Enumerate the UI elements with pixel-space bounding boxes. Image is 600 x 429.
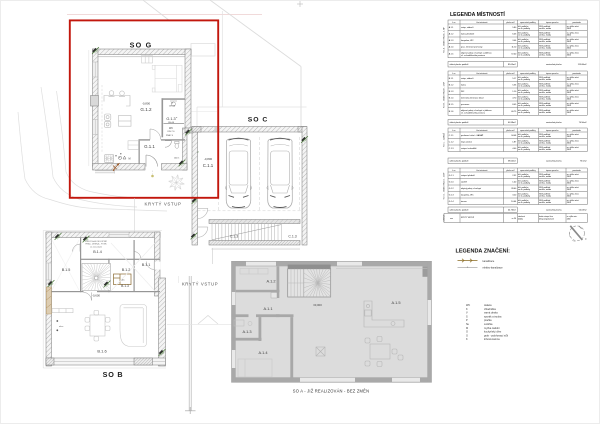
- svg-text:WC: WC: [169, 127, 173, 130]
- svg-text:omítka, malba: omítka, malba: [539, 84, 552, 87]
- svg-text:2600: 2600: [567, 34, 571, 36]
- svg-text:ve sk. podlahy: ve sk. podlahy: [518, 105, 530, 107]
- svg-text:B.1.3: B.1.3: [121, 284, 129, 288]
- svg-text:kuchyňský dřez: kuchyňský dřez: [484, 331, 502, 334]
- svg-text:omítka, malba: omítka, malba: [539, 33, 552, 36]
- svg-text:část místnosti: část místnosti: [476, 21, 488, 24]
- svg-text:74.56m2: 74.56m2: [579, 122, 588, 124]
- svg-text:plocha m2: plocha m2: [506, 170, 514, 172]
- svg-text:SO A - JIŽ REALIZOVÁN - BEZ ZM: SO A - JIŽ REALIZOVÁN - BEZ ZMĚN: [293, 388, 369, 393]
- svg-text:B.1.1: B.1.1: [142, 263, 151, 267]
- svg-text:zpracování podlahy: zpracování podlahy: [520, 130, 536, 132]
- svg-text:DN 7.0: DN 7.0: [168, 131, 176, 133]
- svg-text:CH-00: CH-00: [168, 122, 175, 124]
- svg-text:A.1.4: A.1.4: [258, 350, 268, 355]
- svg-text:72.40: 72.40: [511, 54, 517, 56]
- svg-text:2600: 2600: [567, 41, 571, 43]
- svg-text:č.m.: č.m.: [452, 130, 456, 132]
- svg-text:omítka, malba: omítka, malba: [539, 111, 552, 114]
- svg-text:sušička: sušička: [484, 323, 493, 326]
- svg-text:koupelna, WC: koupelna, WC: [461, 40, 474, 42]
- svg-text:LEGENDA ZNAČENÍ:: LEGENDA ZNAČENÍ:: [456, 247, 511, 255]
- svg-text:B.1.5: B.1.5: [62, 268, 71, 272]
- svg-text:xxx: xxx: [450, 218, 453, 220]
- svg-text:omítka, malba: omítka, malba: [539, 194, 552, 197]
- svg-text:2600: 2600: [567, 136, 571, 138]
- svg-text:část místnosti: část místnosti: [476, 129, 488, 132]
- svg-text:2600: 2600: [567, 79, 571, 81]
- svg-text:PRA 7.0: PRA 7.0: [166, 134, 173, 137]
- svg-text:vstup, zádveří: vstup, zádveří: [461, 26, 474, 29]
- svg-text:2600: 2600: [567, 202, 571, 204]
- svg-text:SO A - JEDNOTKA A - 1.NP: SO A - JEDNOTKA A - 1.NP: [443, 27, 446, 53]
- svg-text:plocha m2: plocha m2: [506, 73, 514, 75]
- svg-text:2600: 2600: [567, 47, 571, 49]
- svg-text:ve sk. podlahy: ve sk. podlahy: [518, 85, 530, 87]
- svg-text:omítka, malba: omítka, malba: [539, 46, 552, 49]
- svg-text:100 m: 100 m: [174, 157, 180, 159]
- svg-text:úprava povrchu: úprava povrchu: [546, 22, 558, 24]
- svg-text:m 20: m 20: [512, 218, 516, 220]
- svg-text:-0,800: -0,800: [142, 101, 151, 105]
- svg-text:poznámka: poznámka: [573, 73, 581, 75]
- svg-text:se zásuvkami: se zásuvkami: [90, 246, 103, 248]
- svg-text:28.60: 28.60: [511, 188, 517, 190]
- svg-text:2600: 2600: [567, 176, 571, 178]
- svg-text:koupelna, WC: koupelna, WC: [461, 195, 474, 197]
- svg-text:plocha m2: plocha m2: [506, 130, 514, 132]
- svg-text:č.m.: č.m.: [452, 22, 456, 24]
- svg-text:2600: 2600: [567, 182, 571, 184]
- svg-text:vstup, zádveří: vstup, zádveří: [461, 77, 474, 80]
- svg-text:zpracování podlahy: zpracování podlahy: [520, 170, 536, 172]
- svg-text:krbová kamna: krbová kamna: [484, 338, 500, 341]
- svg-text:2600: 2600: [567, 195, 571, 197]
- svg-text:KRYTÝ VSTUP: KRYTÝ VSTUP: [461, 216, 475, 219]
- svg-text:zpracování podlahy: zpracování podlahy: [520, 73, 536, 75]
- svg-text:omítka, malba: omítka, malba: [539, 78, 552, 81]
- svg-text:omítka, malba: omítka, malba: [539, 201, 552, 204]
- svg-text:2600: 2600: [567, 105, 571, 107]
- svg-text:B.1.6: B.1.6: [97, 349, 107, 354]
- svg-text:PRAC. DESKA + PONK: PRAC. DESKA + PONK: [85, 243, 107, 246]
- svg-text:užitná plocha podlaží: užitná plocha podlaží: [450, 63, 469, 66]
- svg-text:omítka, malba: omítka, malba: [539, 104, 552, 107]
- svg-text:omítka, malba: omítka, malba: [539, 91, 552, 94]
- svg-text:část místnosti: část místnosti: [476, 169, 488, 172]
- svg-text:poznámka: poznámka: [573, 130, 581, 132]
- svg-text:omítka, malba: omítka, malba: [539, 148, 552, 151]
- svg-text:č.m.: č.m.: [452, 73, 456, 75]
- svg-text:chladnička: chladnička: [484, 308, 496, 311]
- svg-text:mycí prostor: mycí prostor: [461, 141, 472, 144]
- svg-text:závětří: závětří: [461, 181, 467, 184]
- svg-text:WC: WC: [461, 91, 465, 93]
- svg-text:terasa: terasa: [461, 200, 467, 203]
- svg-text:G.1.1: G.1.1: [144, 144, 155, 149]
- svg-text:ve sk. podlahy: ve sk. podlahy: [518, 182, 530, 184]
- svg-text:44.76m2: 44.76m2: [508, 210, 517, 212]
- svg-text:omítka, malba: omítka, malba: [539, 40, 552, 43]
- svg-text:grob - polohovací stůl: grob - polohovací stůl: [484, 334, 508, 337]
- svg-text:technická místnost, sklad: technická místnost, sklad: [461, 97, 483, 100]
- svg-text:M: M: [129, 157, 131, 160]
- svg-text:CH-00: CH-00: [169, 105, 176, 107]
- svg-text:zpracování podlahy: zpracování podlahy: [520, 22, 536, 24]
- svg-text:zastavěná plocha: zastavěná plocha: [546, 63, 562, 66]
- svg-text:č.m.: č.m.: [452, 170, 456, 172]
- svg-text:úprava povrchu: úprava povrchu: [546, 130, 558, 132]
- svg-text:SO C: SO C: [248, 117, 269, 124]
- svg-text:89.09m2: 89.09m2: [508, 64, 517, 66]
- svg-text:ve sk. podlahy: ve sk. podlahy: [518, 79, 530, 81]
- svg-text:±0,000: ±0,000: [313, 303, 322, 307]
- svg-text:úprava povrchu: úprava povrchu: [546, 73, 558, 75]
- svg-text:ve sk. podlahy: ve sk. podlahy: [518, 55, 530, 57]
- svg-text:obytný pokoj s kuchyní: obytný pokoj s kuchyní: [461, 187, 482, 190]
- svg-text:parkovací stání - GARÁŽ: parkovací stání - GARÁŽ: [461, 134, 484, 137]
- svg-text:SO G: SO G: [130, 41, 153, 50]
- svg-text:zastavěná plocha: zastavěná plocha: [546, 121, 562, 124]
- svg-text:ve sk. podlahy: ve sk. podlahy: [518, 34, 530, 36]
- svg-text:ve sk. podlahy: ve sk. podlahy: [518, 112, 530, 114]
- svg-text:omítka, malba: omítka, malba: [539, 175, 552, 178]
- svg-text:kanalizace: kanalizace: [483, 260, 495, 263]
- svg-text:VSTUP: VSTUP: [444, 214, 446, 222]
- svg-text:KRYTÝ VSTUP: KRYTÝ VSTUP: [144, 202, 181, 207]
- svg-text:sporák a trouba: sporák a trouba: [484, 315, 502, 318]
- svg-text:elektro-kanalizace: elektro-kanalizace: [483, 267, 504, 270]
- svg-text:zastavěná plocha: zastavěná plocha: [546, 209, 562, 212]
- svg-text:zastavěná plocha: zastavěná plocha: [546, 160, 562, 163]
- svg-text:omítka, malba: omítka, malba: [539, 97, 552, 100]
- svg-text:A.1.3: A.1.3: [242, 329, 251, 334]
- svg-text:vstupní předsíň: vstupní předsíň: [461, 174, 475, 177]
- svg-text:34.08: 34.08: [511, 135, 517, 137]
- svg-text:60.98m2: 60.98m2: [508, 122, 517, 124]
- svg-text:užitná plocha podlaží: užitná plocha podlaží: [450, 121, 469, 124]
- svg-text:40.75: 40.75: [511, 111, 517, 113]
- svg-text:C.1.3: C.1.3: [230, 235, 238, 239]
- svg-text:2600: 2600: [567, 149, 571, 151]
- svg-text:-0,600: -0,600: [92, 293, 100, 297]
- svg-text:2600: 2600: [567, 92, 571, 94]
- svg-text:ve sk. podlahy: ve sk. podlahy: [518, 195, 530, 197]
- svg-text:dřevy pergolovnané: dřevy pergolovnané: [539, 217, 554, 220]
- svg-text:ve sk. podlahy: ve sk. podlahy: [518, 41, 530, 43]
- svg-text:M: M: [466, 327, 468, 330]
- svg-text:SO C - GARÁŽ: SO C - GARÁŽ: [443, 132, 446, 147]
- svg-text:2600: 2600: [567, 142, 571, 144]
- svg-text:2460: 2460: [567, 218, 571, 220]
- svg-text:SO G - JEDNOTKA G - 1.NP: SO G - JEDNOTKA G - 1.NP: [443, 172, 446, 199]
- svg-text:B.1.2: B.1.2: [122, 268, 131, 272]
- svg-text:omítka, malba: omítka, malba: [539, 188, 552, 191]
- svg-text:toaleta: toaleta: [484, 304, 492, 307]
- svg-text:115.08m2: 115.08m2: [578, 64, 588, 66]
- svg-text:vč. schodišťového prostoru: vč. schodišťového prostoru: [461, 111, 485, 114]
- svg-text:G.1.2: G.1.2: [140, 107, 152, 112]
- svg-text:A.1.5: A.1.5: [391, 300, 400, 305]
- svg-text:ve sk. podlahy: ve sk. podlahy: [518, 142, 530, 144]
- svg-text:prac. místnost pro hosty: prac. místnost pro hosty: [461, 46, 482, 49]
- svg-text:omítka, malba: omítka, malba: [539, 141, 552, 144]
- svg-text:vstupní schodiště: vstupní schodiště: [461, 147, 477, 150]
- svg-text:ve sk. podlahy: ve sk. podlahy: [518, 28, 530, 30]
- svg-text:užitná plocha podlaží: užitná plocha podlaží: [450, 160, 469, 163]
- svg-text:pračka: pračka: [484, 319, 492, 322]
- svg-text:poznámka: poznámka: [573, 22, 581, 24]
- svg-text:2600: 2600: [567, 112, 571, 114]
- svg-text:šatna předsíně: šatna předsíně: [461, 33, 475, 36]
- svg-text:ve sk. podlahy: ve sk. podlahy: [518, 47, 530, 49]
- svg-text:omítka, malba: omítka, malba: [539, 181, 552, 184]
- svg-text:myčka nádobí: myčka nádobí: [484, 327, 500, 330]
- svg-text:73.5m2: 73.5m2: [580, 161, 588, 163]
- svg-text:omítka, malba: omítka, malba: [539, 135, 552, 138]
- svg-text:plocha m2: plocha m2: [506, 22, 514, 24]
- svg-text:2600: 2600: [567, 28, 571, 30]
- svg-text:ve sk. podlahy: ve sk. podlahy: [518, 202, 530, 204]
- svg-text:ve sk. podlahy: ve sk. podlahy: [518, 98, 530, 100]
- svg-text:ve sk. podlahy: ve sk. podlahy: [518, 149, 530, 151]
- svg-text:2600: 2600: [567, 85, 571, 87]
- svg-text:ve sk. podlahy: ve sk. podlahy: [518, 92, 530, 94]
- svg-text:G: G: [466, 334, 468, 337]
- svg-text:C.1.1: C.1.1: [203, 163, 214, 168]
- svg-text:SO B: SO B: [103, 370, 124, 379]
- svg-text:2600: 2600: [567, 55, 571, 57]
- svg-text:A.1.1: A.1.1: [263, 306, 272, 311]
- svg-text:2600: 2600: [567, 189, 571, 191]
- svg-text:38.00m2: 38.00m2: [508, 161, 517, 163]
- svg-text:ve sk. podlahy: ve sk. podlahy: [518, 189, 530, 191]
- svg-text:WC: WC: [466, 304, 470, 307]
- svg-text:ve sk. podlahy: ve sk. podlahy: [518, 176, 530, 178]
- svg-text:-0,800: -0,800: [204, 157, 213, 161]
- svg-text:G.1.3: G.1.3: [166, 117, 175, 121]
- svg-text:B.1.4: B.1.4: [93, 250, 102, 254]
- svg-text:C.1.3: C.1.3: [288, 235, 296, 239]
- svg-text:pracovna: pracovna: [461, 104, 470, 106]
- svg-text:omítka, malba: omítka, malba: [539, 27, 552, 30]
- svg-text:2600: 2600: [567, 98, 571, 100]
- svg-text:užitná plocha podlaží: užitná plocha podlaží: [450, 209, 469, 212]
- svg-text:dlažba: dlažba: [518, 218, 523, 220]
- svg-text:LEGENDA MÍSTNOSTÍ: LEGENDA MÍSTNOSTÍ: [450, 10, 505, 18]
- svg-text:úprava povrchu: úprava povrchu: [546, 170, 558, 172]
- svg-text:část místnosti: část místnosti: [476, 72, 488, 75]
- svg-text:vč. schodišťového prostoru: vč. schodišťového prostoru: [461, 54, 485, 57]
- svg-text:poznámka: poznámka: [573, 170, 581, 172]
- svg-text:varná deska: varná deska: [484, 312, 498, 315]
- svg-text:10.64: 10.64: [511, 201, 517, 203]
- svg-text:KRYTÝ VSTUP: KRYTÝ VSTUP: [182, 282, 218, 287]
- svg-text:O: O: [466, 331, 468, 334]
- svg-text:A.1.2: A.1.2: [266, 279, 275, 284]
- svg-text:ve sk. podlahy: ve sk. podlahy: [518, 136, 530, 138]
- svg-text:SO B - JEDNOTKA B - 1.NP: SO B - JEDNOTKA B - 1.NP: [443, 81, 446, 108]
- svg-text:omítka, malba: omítka, malba: [539, 54, 552, 57]
- svg-text:54.03m2: 54.03m2: [579, 210, 588, 212]
